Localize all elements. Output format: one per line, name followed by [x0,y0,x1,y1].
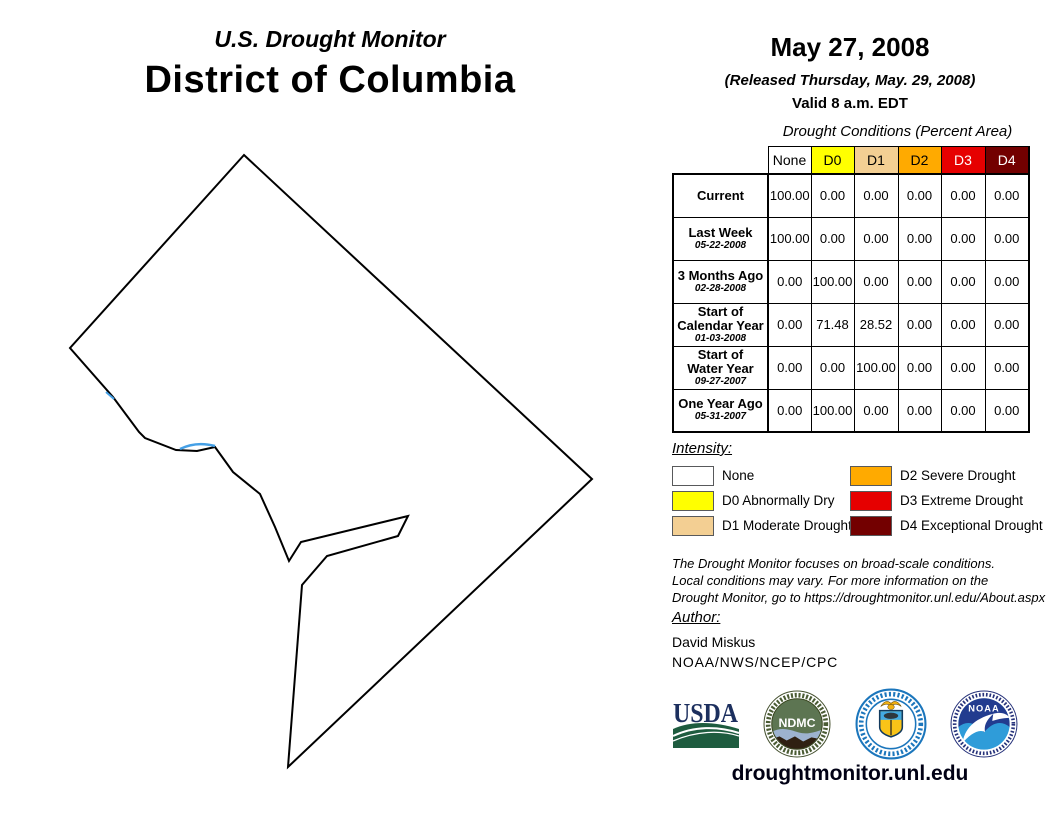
commerce-ship [883,713,897,719]
legend-label: D3 Extreme Drought [900,493,1023,508]
percent-value-cell: 100.00 [768,174,811,217]
percent-value-cell: 0.00 [811,174,854,217]
percent-value-cell: 0.00 [898,303,941,346]
ndmc-logo: NDMC [763,690,831,758]
table-row: 3 Months Ago02-28-20080.00100.000.000.00… [673,260,1029,303]
percent-value-cell: 0.00 [898,260,941,303]
disclaimer-line: The Drought Monitor focuses on broad-sca… [672,555,1056,572]
dc-map [0,140,640,800]
disclaimer-text: The Drought Monitor focuses on broad-sca… [672,555,1056,606]
percent-value-cell: 0.00 [854,260,898,303]
disclaimer-line: Local conditions may vary. For more info… [672,572,1056,589]
percent-value-cell: 71.48 [811,303,854,346]
author-organization: NOAA/NWS/NCEP/CPC [672,654,838,670]
legend-swatch [850,466,892,486]
ndmc-logo-text: NDMC [779,716,816,730]
table-row: One Year Ago05-31-20070.00100.000.000.00… [673,389,1029,432]
percent-value-cell: 0.00 [854,389,898,432]
row-label-line: Last Week [674,226,767,240]
percent-value-cell: 0.00 [941,346,985,389]
map-date: May 27, 2008 [672,32,1028,63]
row-label: Last Week05-22-2008 [673,217,768,260]
table-row: Last Week05-22-2008100.000.000.000.000.0… [673,217,1029,260]
legend-title: Intensity: [672,440,1042,457]
percent-value-cell: 28.52 [854,303,898,346]
region-title: District of Columbia [0,59,660,102]
row-label-line: Start of [674,305,767,319]
logo-row: USDA NDMC [672,688,1018,760]
percent-value-cell: 0.00 [941,389,985,432]
author-block: Author: David Miskus NOAA/NWS/NCEP/CPC [672,609,838,670]
percent-value-cell: 0.00 [941,303,985,346]
legend-swatch [850,516,892,536]
date-block: May 27, 2008 (Released Thursday, May. 29… [672,32,1028,112]
percent-value-cell: 0.00 [985,346,1029,389]
usda-logo: USDA [672,696,740,752]
percent-value-cell: 100.00 [854,346,898,389]
row-label-line: Water Year [674,362,767,376]
row-label: Start ofCalendar Year01-03-2008 [673,303,768,346]
noaa-logo-text: NOAA [968,704,999,714]
column-header-d0: D0 [811,147,854,175]
monitor-title: U.S. Drought Monitor [0,26,660,53]
column-header-d2: D2 [898,147,941,175]
percent-value-cell: 0.00 [898,174,941,217]
row-date: 05-22-2008 [674,240,767,252]
percent-value-cell: 100.00 [811,260,854,303]
legend-item-d4: D4 Exceptional Drought [850,516,1043,535]
column-header-d3: D3 [941,147,985,175]
table-corner [673,147,768,175]
valid-line: Valid 8 a.m. EDT [672,95,1028,112]
row-label-line: Current [674,189,767,203]
usda-green-field [673,723,739,748]
released-line: (Released Thursday, May. 29, 2008) [672,72,1028,89]
percent-value-cell: 0.00 [985,303,1029,346]
row-label-line: Start of [674,348,767,362]
column-header-none: None [768,147,811,175]
commerce-seal [855,688,927,760]
dc-boundary-outline [70,155,592,767]
percent-value-cell: 0.00 [985,217,1029,260]
percent-value-cell: 0.00 [854,217,898,260]
row-label: 3 Months Ago02-28-2008 [673,260,768,303]
percent-value-cell: 0.00 [941,217,985,260]
percent-value-cell: 0.00 [811,217,854,260]
table-row: Start ofWater Year09-27-20070.000.00100.… [673,346,1029,389]
legend-label: None [722,468,754,483]
legend-swatch [672,491,714,511]
row-label-line: One Year Ago [674,397,767,411]
intensity-legend: Intensity: NoneD0 Abnormally DryD1 Moder… [672,440,1042,541]
percent-value-cell: 0.00 [768,303,811,346]
legend-item-d1: D1 Moderate Drought [672,516,850,535]
legend-column-left: NoneD0 Abnormally DryD1 Moderate Drought [672,466,850,541]
percent-value-cell: 100.00 [811,389,854,432]
percent-value-cell: 0.00 [985,389,1029,432]
legend-label: D0 Abnormally Dry [722,493,835,508]
percent-value-cell: 100.00 [768,217,811,260]
percent-value-cell: 0.00 [941,174,985,217]
percent-value-cell: 0.00 [941,260,985,303]
row-date: 09-27-2007 [674,376,767,388]
drought-conditions-table: NoneD0D1D2D3D4Current100.000.000.000.000… [672,146,1030,433]
legend-item-d0: D0 Abnormally Dry [672,491,850,510]
row-date: 01-03-2008 [674,333,767,345]
column-header-d1: D1 [854,147,898,175]
legend-swatch [850,491,892,511]
percent-value-cell: 0.00 [898,346,941,389]
legend-swatch [672,466,714,486]
percent-value-cell: 0.00 [811,346,854,389]
table-row: Current100.000.000.000.000.000.00 [673,174,1029,217]
percent-value-cell: 0.00 [985,174,1029,217]
legend-item-none: None [672,466,850,485]
row-label: Start ofWater Year09-27-2007 [673,346,768,389]
legend-label: D1 Moderate Drought [722,518,852,533]
legend-item-d2: D2 Severe Drought [850,466,1043,485]
left-header: U.S. Drought Monitor District of Columbi… [0,26,660,102]
row-label: One Year Ago05-31-2007 [673,389,768,432]
legend-column-right: D2 Severe DroughtD3 Extreme DroughtD4 Ex… [850,466,1043,541]
row-label: Current [673,174,768,217]
disclaimer-line: Drought Monitor, go to https://droughtmo… [672,589,1056,606]
row-label-line: 3 Months Ago [674,269,767,283]
row-label-line: Calendar Year [674,319,767,333]
author-title: Author: [672,609,838,626]
percent-value-cell: 0.00 [768,346,811,389]
percent-value-cell: 0.00 [768,260,811,303]
row-date: 02-28-2008 [674,283,767,295]
percent-value-cell: 0.00 [768,389,811,432]
author-name: David Miskus [672,634,838,650]
table-title: Drought Conditions (Percent Area) [767,123,1028,140]
column-header-d4: D4 [985,147,1029,175]
row-date: 05-31-2007 [674,411,767,423]
legend-swatch [672,516,714,536]
percent-value-cell: 0.00 [898,217,941,260]
legend-label: D2 Severe Drought [900,468,1016,483]
percent-value-cell: 0.00 [898,389,941,432]
legend-item-d3: D3 Extreme Drought [850,491,1043,510]
noaa-logo: NOAA [950,690,1018,758]
percent-value-cell: 0.00 [854,174,898,217]
footer-url: droughtmonitor.unl.edu [672,762,1028,786]
percent-value-cell: 0.00 [985,260,1029,303]
legend-label: D4 Exceptional Drought [900,518,1043,533]
table-row: Start ofCalendar Year01-03-20080.0071.48… [673,303,1029,346]
